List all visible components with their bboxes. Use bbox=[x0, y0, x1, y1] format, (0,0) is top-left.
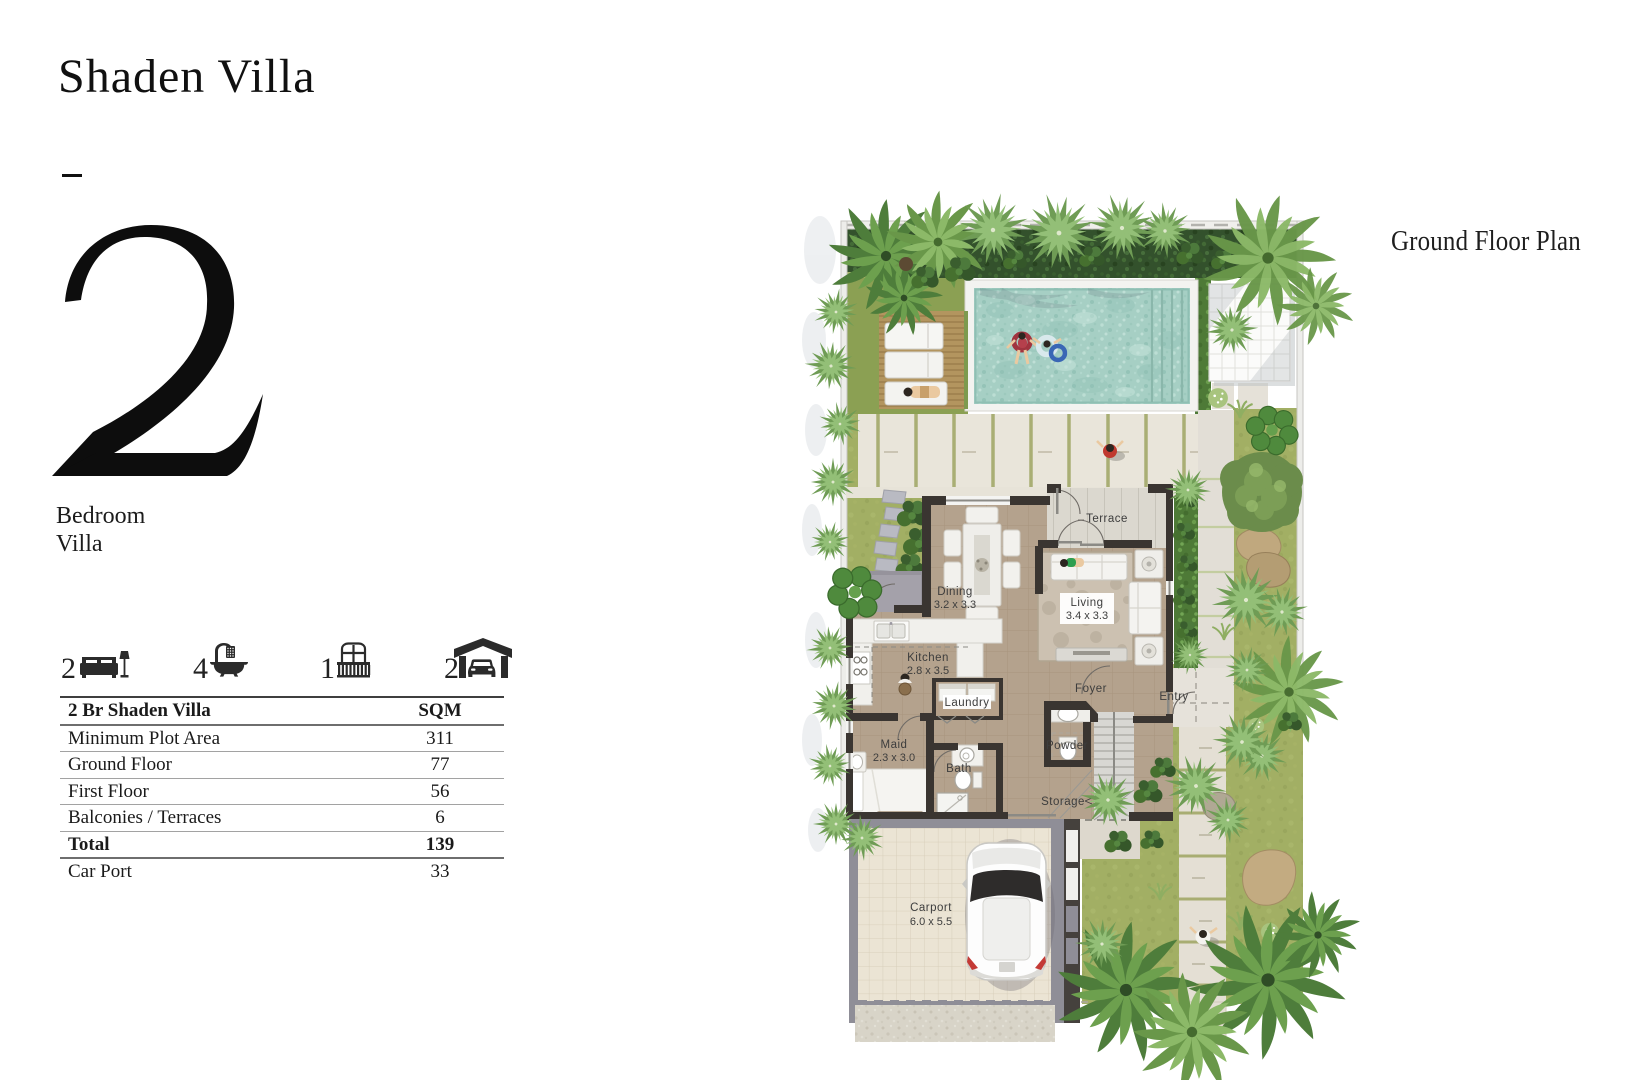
svg-text:Storage: Storage bbox=[1041, 796, 1085, 808]
svg-text:Laundry: Laundry bbox=[944, 697, 989, 709]
svg-text:Dining: Dining bbox=[937, 586, 973, 598]
svg-text:Carport: Carport bbox=[910, 902, 952, 914]
svg-text:2.8 x 3.5: 2.8 x 3.5 bbox=[907, 665, 949, 677]
svg-text:Living: Living bbox=[1070, 597, 1103, 609]
svg-text:Entry: Entry bbox=[1159, 691, 1188, 703]
svg-text:Kitchen: Kitchen bbox=[907, 652, 949, 664]
svg-text:Bath: Bath bbox=[946, 763, 972, 775]
svg-text:Terrace: Terrace bbox=[1086, 513, 1128, 525]
svg-text:3.2 x 3.3: 3.2 x 3.3 bbox=[934, 599, 976, 611]
svg-text:3.4 x 3.3: 3.4 x 3.3 bbox=[1066, 610, 1108, 622]
svg-text:6.0 x 5.5: 6.0 x 5.5 bbox=[910, 916, 952, 928]
svg-text:2.3 x 3.0: 2.3 x 3.0 bbox=[873, 752, 915, 764]
svg-text:Powder: Powder bbox=[1046, 740, 1088, 752]
svg-text:Maid: Maid bbox=[881, 739, 908, 751]
svg-text:Foyer: Foyer bbox=[1075, 683, 1107, 695]
